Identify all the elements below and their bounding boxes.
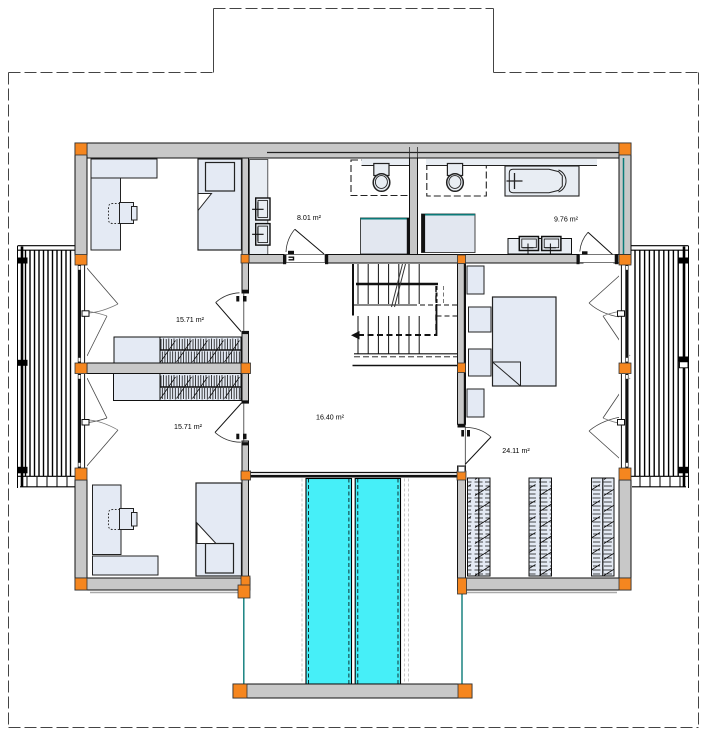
svg-text:15.71 m²: 15.71 m² [174,423,203,431]
svg-text:24.11 m²: 24.11 m² [502,447,530,455]
svg-text:15.71 m²: 15.71 m² [176,316,205,324]
svg-text:8.01 m²: 8.01 m² [297,214,322,222]
svg-text:16.40 m²: 16.40 m² [316,414,345,422]
svg-text:9.76 m²: 9.76 m² [554,216,579,224]
